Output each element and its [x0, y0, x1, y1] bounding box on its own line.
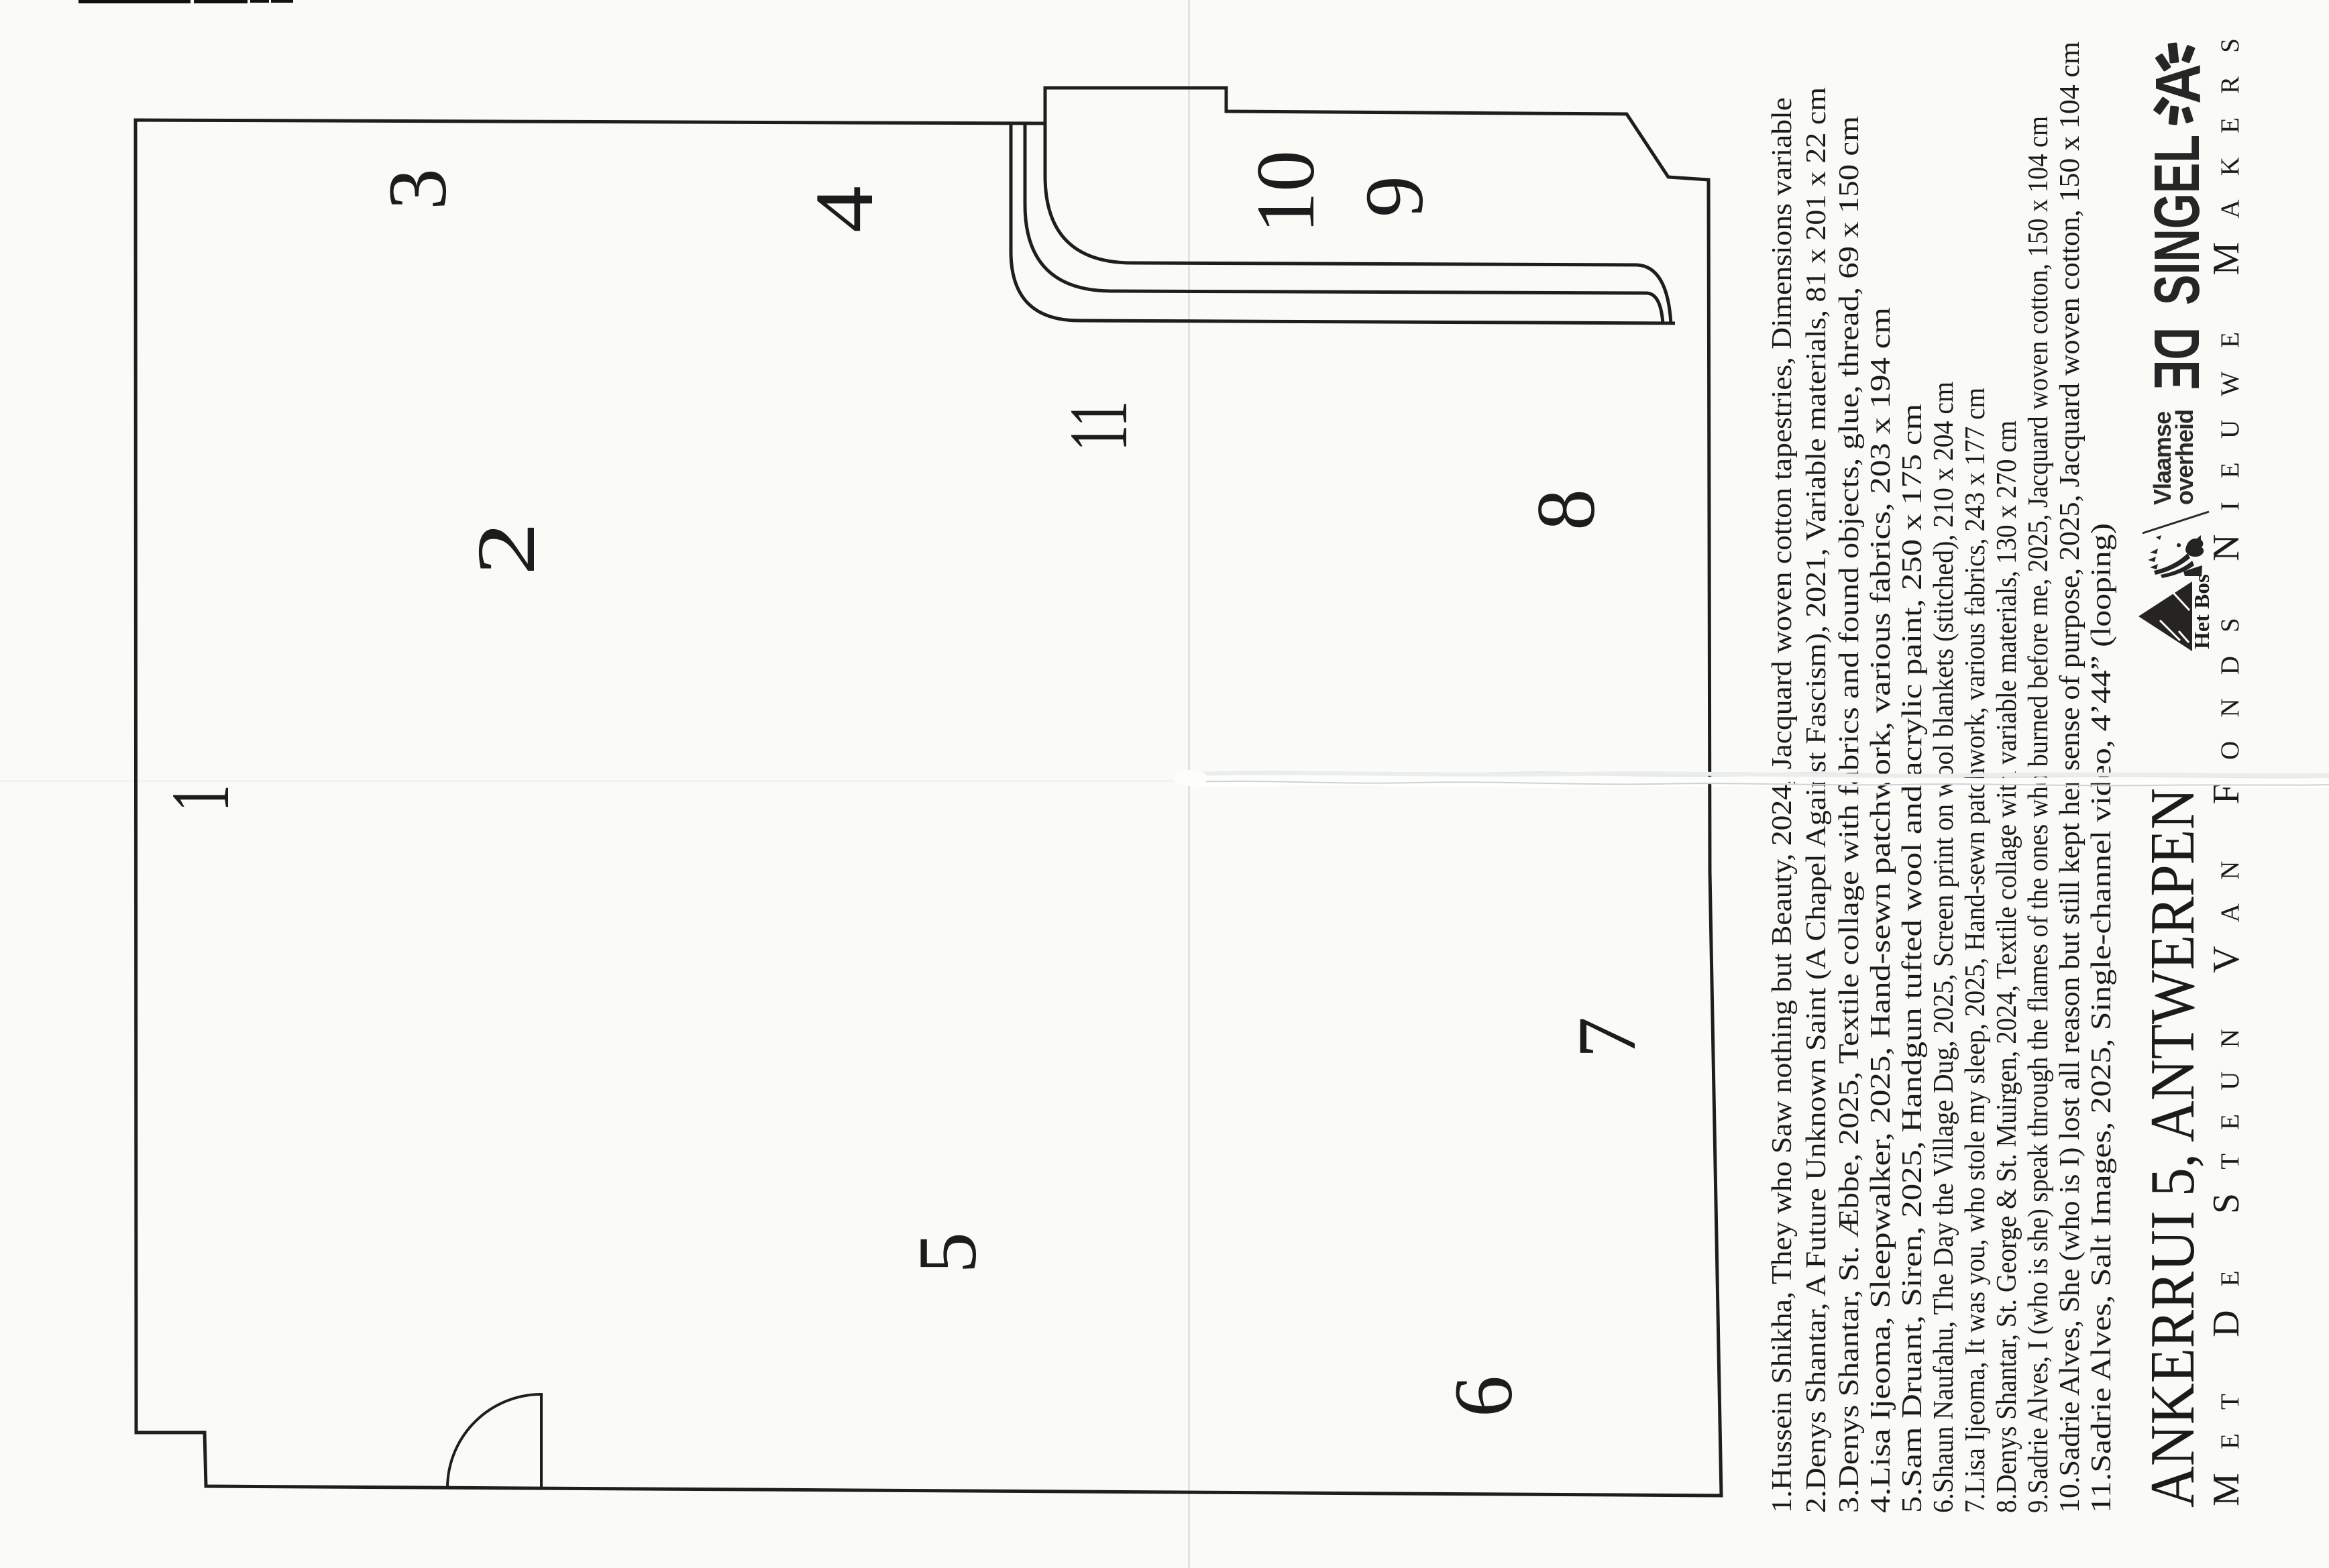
svg-text:5.Sam Druant, Siren, 2025, Han: 5.Sam Druant, Siren, 2025, Handgun tufte… — [1897, 404, 1928, 1513]
svg-text:10.Sadrie Alves, She (who is I: 10.Sadrie Alves, She (who is I) lost all… — [2055, 42, 2086, 1513]
svg-text:2: 2 — [460, 522, 552, 575]
svg-text:ANKERRUI 5, ANTWERPEN: ANKERRUI 5, ANTWERPEN — [2138, 788, 2208, 1508]
svg-text:7.Lisa Ijeoma, It was you, who: 7.Lisa Ijeoma, It was you, who stole my … — [1960, 388, 1991, 1513]
svg-text:3: 3 — [372, 168, 464, 210]
svg-text:SINGEL: SINGEL — [2141, 135, 2213, 305]
svg-text:10: 10 — [1240, 150, 1332, 233]
svg-text:1: 1 — [154, 785, 246, 811]
svg-text:6: 6 — [1438, 1376, 1529, 1417]
svg-text:4: 4 — [798, 186, 890, 233]
svg-text:5: 5 — [902, 1232, 993, 1274]
svg-text:4.Lisa Ijeoma, Sleepwalker, 20: 4.Lisa Ijeoma, Sleepwalker, 2025, Hand-s… — [1865, 307, 1896, 1513]
svg-text:DE: DE — [2141, 327, 2213, 390]
svg-text:11: 11 — [1052, 401, 1144, 451]
svg-text:3.Denys Shantar, St. Æbbe, 202: 3.Denys Shantar, St. Æbbe, 2025, Textile… — [1834, 116, 1865, 1513]
svg-text:11.Sadrie Alves, Salt Images,: 11.Sadrie Alves, Salt Images, 2025, Sing… — [2086, 523, 2117, 1513]
svg-text:Het Bos: Het Bos — [2189, 574, 2214, 649]
svg-text:9.Sadrie Alves, I (who is she): 9.Sadrie Alves, I (who is she) speak thr… — [2023, 116, 2054, 1513]
svg-text:9: 9 — [1348, 176, 1440, 217]
svg-text:6.Shaun Naufahu, The Day the V: 6.Shaun Naufahu, The Day the Village Dug… — [1929, 382, 1959, 1513]
svg-text:A: A — [2143, 64, 2214, 104]
svg-text:1.Hussein Shikha, They who Saw: 1.Hussein Shikha, They who Saw nothing b… — [1767, 97, 1798, 1513]
svg-text:overheid: overheid — [2171, 410, 2198, 505]
svg-text:8.Denys Shantar, St. George &: 8.Denys Shantar, St. George & St. Muirge… — [1992, 421, 2022, 1513]
svg-text:7: 7 — [1561, 1017, 1653, 1058]
svg-text:2.Denys Shantar, A Future Unkn: 2.Denys Shantar, A Future Unknown Saint … — [1801, 87, 1832, 1513]
svg-text:8: 8 — [1520, 489, 1612, 530]
